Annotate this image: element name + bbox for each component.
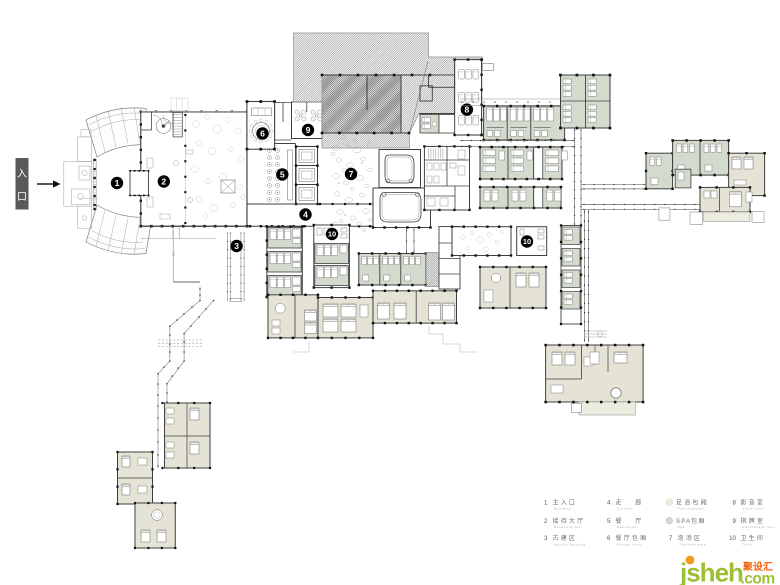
svg-text:The bath area: The bath area <box>679 542 706 546</box>
svg-text:Video room: Video room <box>742 507 764 511</box>
svg-text:1: 1 <box>115 178 120 188</box>
svg-text:2: 2 <box>544 518 548 525</box>
svg-text:主入口: 主入口 <box>553 498 578 506</box>
svg-text:Restaurant: Restaurant <box>617 525 638 529</box>
svg-text:Toilet: Toilet <box>742 542 753 546</box>
svg-text:3: 3 <box>234 241 239 251</box>
svg-text:Foot massage: Foot massage <box>678 507 705 511</box>
svg-text:入: 入 <box>17 169 27 180</box>
svg-text:7: 7 <box>669 535 673 542</box>
svg-text:泡汤区: 泡汤区 <box>678 534 703 542</box>
svg-text:7: 7 <box>349 169 354 179</box>
svg-text:Reception hall: Reception hall <box>554 525 582 529</box>
svg-text:Corridor: Corridor <box>617 507 633 511</box>
svg-text:historic building: historic building <box>554 542 586 546</box>
svg-text:Chessboard room: Chessboard room <box>742 525 776 529</box>
svg-text:卫生间: 卫生间 <box>741 534 766 542</box>
svg-text:10: 10 <box>328 229 336 238</box>
svg-text:5: 5 <box>607 518 611 525</box>
svg-text:餐厅包厢: 餐厅包厢 <box>616 534 649 542</box>
svg-text:接待大厅: 接待大厅 <box>553 517 586 525</box>
svg-text:9: 9 <box>733 518 737 525</box>
svg-text:5: 5 <box>280 169 285 179</box>
svg-text:.com: .com <box>741 571 775 585</box>
svg-text:6: 6 <box>607 535 611 542</box>
svg-text:4: 4 <box>607 499 611 506</box>
svg-text:足浴包厢: 足浴包厢 <box>676 498 709 506</box>
svg-text:3: 3 <box>544 535 548 542</box>
svg-text:SPA包厢: SPA包厢 <box>676 517 706 525</box>
svg-text:1: 1 <box>544 499 548 506</box>
svg-text:6: 6 <box>260 128 265 138</box>
svg-text:餐 厅: 餐 厅 <box>616 517 644 525</box>
svg-text:影音室: 影音室 <box>741 498 766 506</box>
svg-text:Entrance: Entrance <box>554 507 571 511</box>
svg-text:10: 10 <box>729 535 736 542</box>
svg-text:jsheh: jsheh <box>679 558 743 585</box>
svg-text:Private room: Private room <box>617 542 642 546</box>
svg-text:棋牌室: 棋牌室 <box>741 517 766 525</box>
svg-text:口: 口 <box>17 192 27 203</box>
svg-text:9: 9 <box>306 125 311 135</box>
svg-text:古建区: 古建区 <box>553 534 578 542</box>
svg-text:8: 8 <box>733 499 737 506</box>
svg-text:走 廊: 走 廊 <box>616 498 644 506</box>
svg-text:Spa: Spa <box>678 525 685 529</box>
svg-text:8: 8 <box>465 104 470 114</box>
svg-text:10: 10 <box>523 237 531 246</box>
svg-text:4: 4 <box>303 209 308 219</box>
svg-text:2: 2 <box>161 176 166 186</box>
